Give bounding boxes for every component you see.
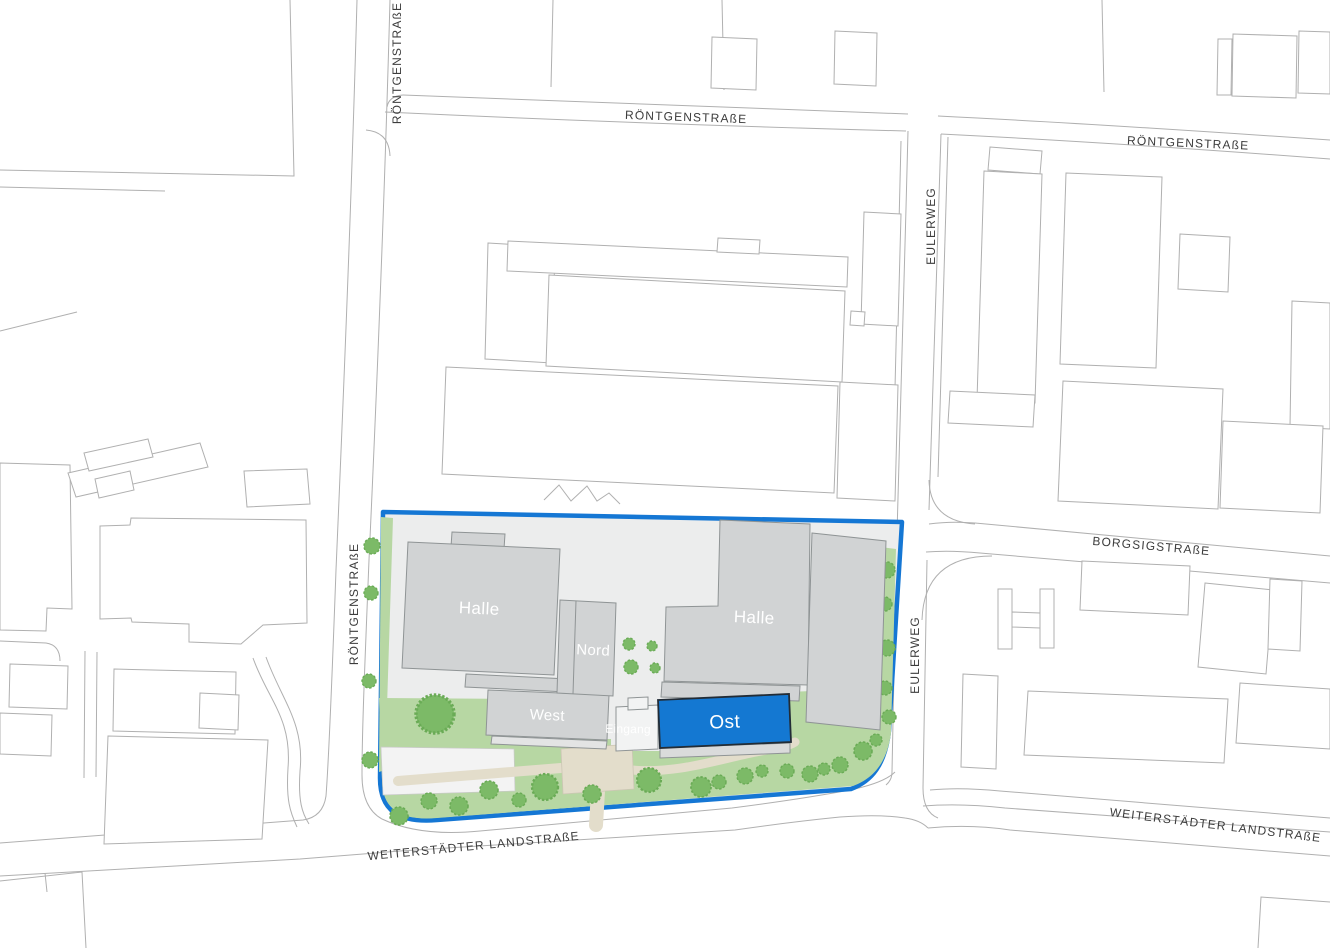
building-outline	[711, 37, 757, 90]
building-label-nord: Nord	[576, 641, 610, 659]
building-outline	[100, 518, 307, 644]
building-label-west: West	[529, 706, 565, 725]
tree-icon	[362, 674, 376, 688]
tree-icon	[647, 641, 657, 651]
parcel-line	[0, 872, 86, 948]
street-line	[922, 556, 992, 620]
building-outline	[861, 212, 901, 326]
building-outline	[0, 463, 72, 631]
building-outline	[244, 469, 310, 507]
building-outline	[1178, 234, 1230, 292]
street-label-weiterstaedter-left: WEITERSTÄDTER LANDSTRAßE	[367, 829, 580, 863]
tree-icon	[450, 797, 468, 815]
tree-icon	[854, 742, 872, 760]
tree-icon	[624, 660, 638, 674]
building-outline	[0, 713, 52, 756]
street-label-roentgenstrasse-vertical-mid: RÖNTGENSTRAßE	[347, 543, 361, 665]
building-outline	[1040, 589, 1054, 648]
building-outline	[717, 238, 760, 254]
lane-line	[84, 651, 97, 778]
building-label-halle-east: Halle	[733, 607, 775, 628]
building-outline	[850, 311, 865, 326]
building-outline	[199, 693, 239, 730]
street-label-weiterstaedter-right: WEITERSTÄDTER LANDSTRAßE	[1109, 805, 1322, 845]
building-outline	[1298, 31, 1330, 94]
building-east-tall[interactable]	[806, 533, 886, 730]
tree-icon	[480, 781, 498, 799]
tree-icon	[390, 807, 408, 825]
building-outline	[1268, 579, 1302, 651]
building-outline	[1080, 561, 1190, 615]
building-label-ost: Ost	[709, 711, 741, 733]
building-label-eingang: Eingang	[605, 722, 651, 737]
tree-icon	[512, 793, 526, 807]
project-site: Halle Halle Nord West Eingang Ost	[362, 512, 902, 825]
building-outline	[961, 674, 998, 769]
building-outline	[837, 382, 898, 501]
tree-icon	[364, 586, 378, 600]
tree-icon	[780, 764, 794, 778]
tree-icon	[870, 734, 882, 746]
building-outline	[1058, 381, 1223, 509]
tree-icon	[756, 765, 768, 777]
tree-icon	[882, 710, 896, 724]
tree-icon	[637, 768, 661, 792]
parcel-line	[0, 312, 77, 331]
tree-icon	[416, 695, 454, 733]
tree-icon	[691, 777, 711, 797]
building-outline	[834, 31, 877, 86]
tree-icon	[583, 785, 601, 803]
tree-icon	[532, 774, 558, 800]
building-outline	[442, 367, 838, 493]
street-label-roentgenstrasse-vertical-top: RÖNTGENSTRAßE	[390, 2, 404, 124]
street-line	[403, 95, 1330, 140]
building-outline	[1220, 421, 1323, 513]
parcel-line	[544, 485, 620, 504]
tree-icon	[737, 768, 753, 784]
building-outline	[1236, 683, 1330, 749]
building-outline	[948, 391, 1035, 427]
site-plan-map: Halle Halle Nord West Eingang Ost RÖNTGE…	[0, 0, 1330, 948]
street-label-borgsigstrasse: BORGSIGSTRAßE	[1092, 534, 1211, 558]
street-label-eulerweg-top: EULERWEG	[924, 187, 938, 265]
parcel-line	[0, 187, 165, 191]
building-outline	[1024, 691, 1228, 763]
building-outline	[977, 171, 1042, 403]
street-line	[929, 480, 975, 524]
building-outline	[1198, 583, 1273, 674]
building-outline	[1012, 612, 1040, 628]
street-label-eulerweg-mid: EULERWEG	[908, 616, 922, 694]
building-outline	[998, 589, 1012, 649]
parcel-line	[0, 0, 294, 176]
building-outline	[1290, 301, 1330, 429]
building-outline	[546, 275, 845, 382]
tree-icon	[421, 793, 437, 809]
parcel-line	[551, 0, 1104, 92]
building-outline	[1217, 39, 1232, 95]
tree-icon	[650, 663, 660, 673]
street-label-roentgenstrasse-top-right: RÖNTGENSTRAßE	[1127, 133, 1250, 152]
tree-icon	[832, 757, 848, 773]
parcel-line	[1258, 897, 1330, 948]
building-outline	[104, 736, 268, 844]
tree-icon	[712, 775, 726, 789]
parcel-line	[0, 641, 60, 661]
street-label-roentgenstrasse-top: RÖNTGENSTRAßE	[625, 108, 748, 126]
tree-icon	[818, 763, 830, 775]
tree-icon	[364, 538, 380, 554]
building-outline	[1232, 34, 1297, 98]
tree-icon	[802, 766, 818, 782]
building-eingang-annex	[628, 697, 648, 710]
building-outline	[988, 147, 1042, 174]
tree-icon	[623, 638, 635, 650]
building-label-halle-west: Halle	[458, 598, 500, 619]
building-outline	[1060, 173, 1162, 368]
tree-icon	[362, 752, 378, 768]
building-outline	[9, 664, 68, 709]
